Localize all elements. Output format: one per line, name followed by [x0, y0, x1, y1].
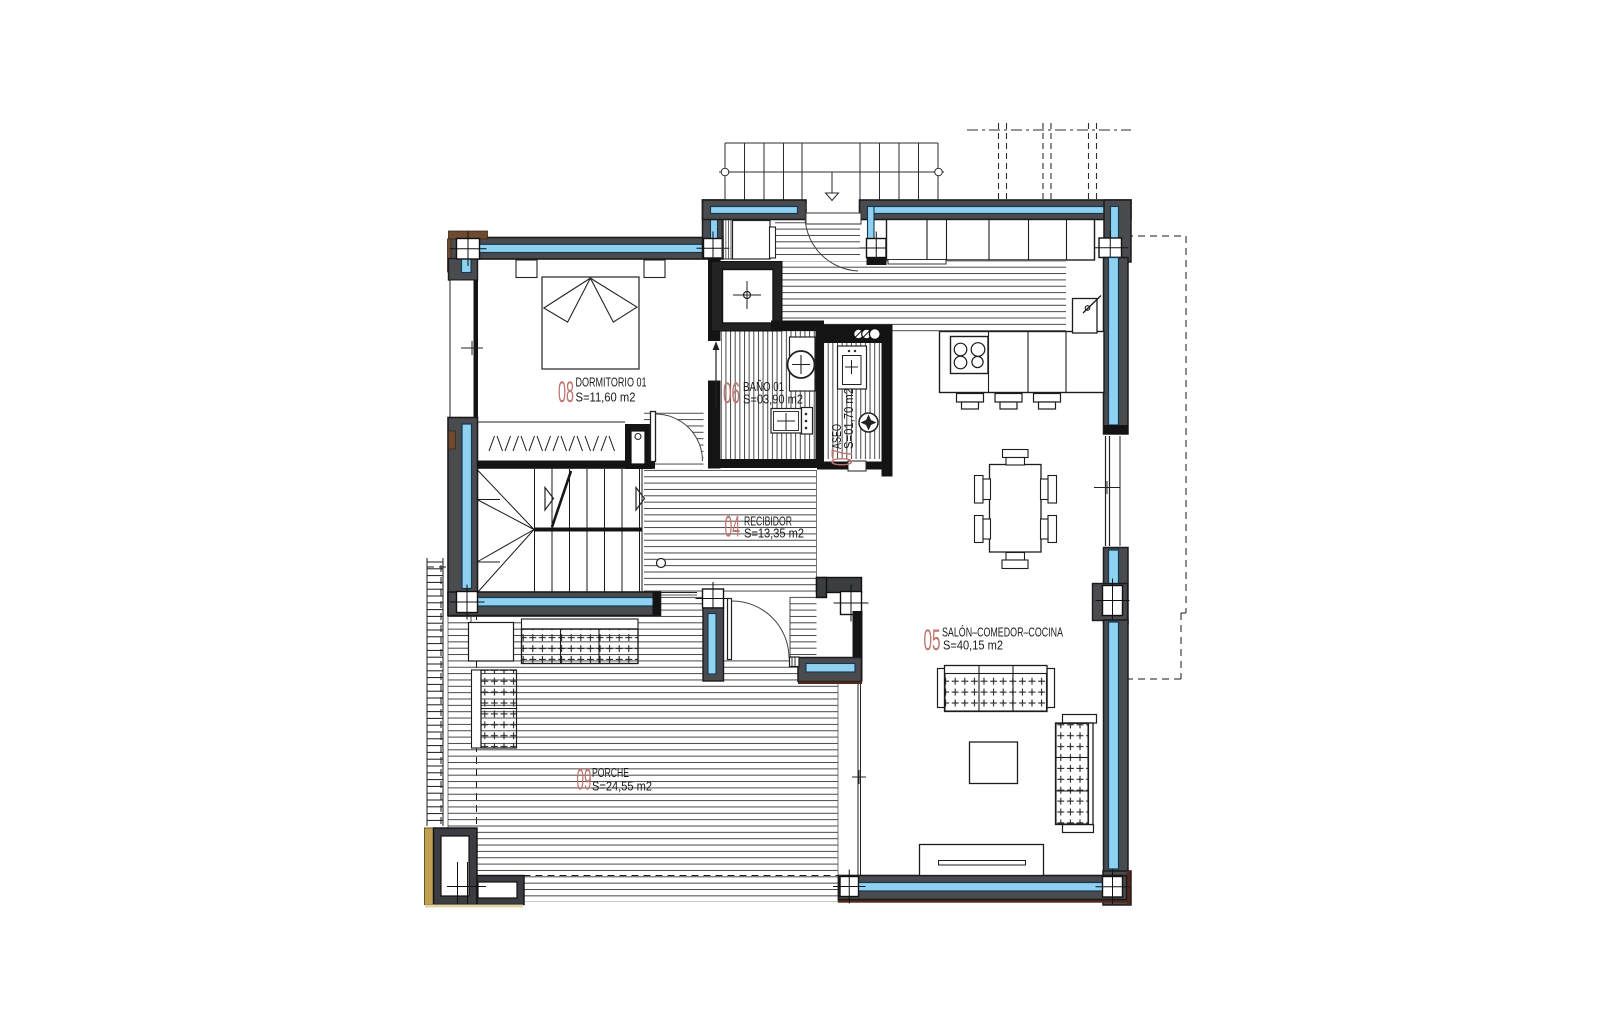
svg-text:06: 06: [723, 377, 740, 410]
svg-text:S=24,55 m2: S=24,55 m2: [592, 779, 652, 794]
svg-text:09: 09: [577, 764, 592, 797]
svg-text:S=13,35 m2: S=13,35 m2: [744, 526, 804, 541]
svg-text:05: 05: [924, 624, 941, 657]
svg-text:08: 08: [558, 376, 574, 409]
svg-text:S=03,90 m2: S=03,90 m2: [743, 392, 803, 407]
svg-text:DORMITORIO 01: DORMITORIO 01: [576, 375, 647, 390]
svg-text:S=40,15 m2: S=40,15 m2: [943, 638, 1003, 653]
svg-text:04: 04: [725, 511, 741, 544]
svg-text:07: 07: [826, 449, 859, 466]
svg-text:S=11,60 m2: S=11,60 m2: [576, 390, 636, 405]
svg-text:S=01,70 m2: S=01,70 m2: [841, 388, 856, 449]
